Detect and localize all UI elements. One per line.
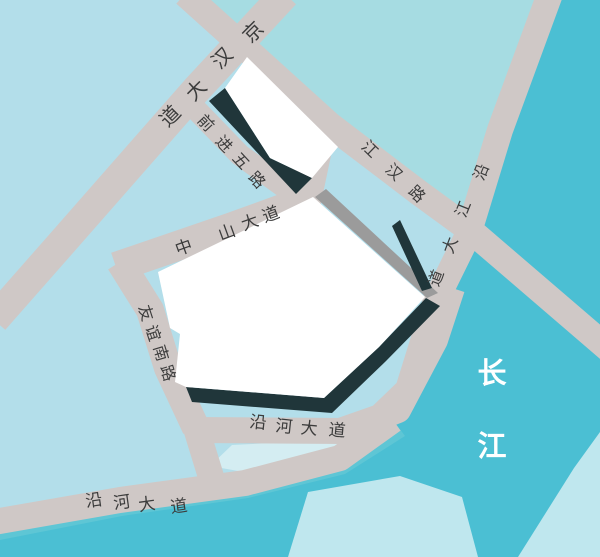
road-label-yanhe-avenue-upper: 大 <box>300 418 319 439</box>
road-label-yanhe-avenue-lower: 沿 <box>84 490 104 512</box>
river-label-changjiang: 江 <box>477 429 506 463</box>
river-label-changjiang: 长 <box>477 356 507 390</box>
road-label-yanhe-avenue-upper: 道 <box>328 420 347 441</box>
road-junction-connector <box>196 428 212 480</box>
road-label-yanhe-avenue-lower: 道 <box>169 496 189 518</box>
road-label-yanhe-avenue-upper: 河 <box>275 416 294 438</box>
street-map: 京汉大道前进五路江汉路沿江大道中山大道友谊南路沿河大道沿河大道长江 <box>0 0 600 557</box>
road-label-yanhe-avenue-lower: 河 <box>112 492 132 514</box>
road-label-yanhe-avenue-lower: 大 <box>137 494 157 516</box>
map-canvas: 京汉大道前进五路江汉路沿江大道中山大道友谊南路沿河大道沿河大道长江 <box>0 0 600 557</box>
road-label-yanhe-avenue-upper: 沿 <box>249 412 268 434</box>
